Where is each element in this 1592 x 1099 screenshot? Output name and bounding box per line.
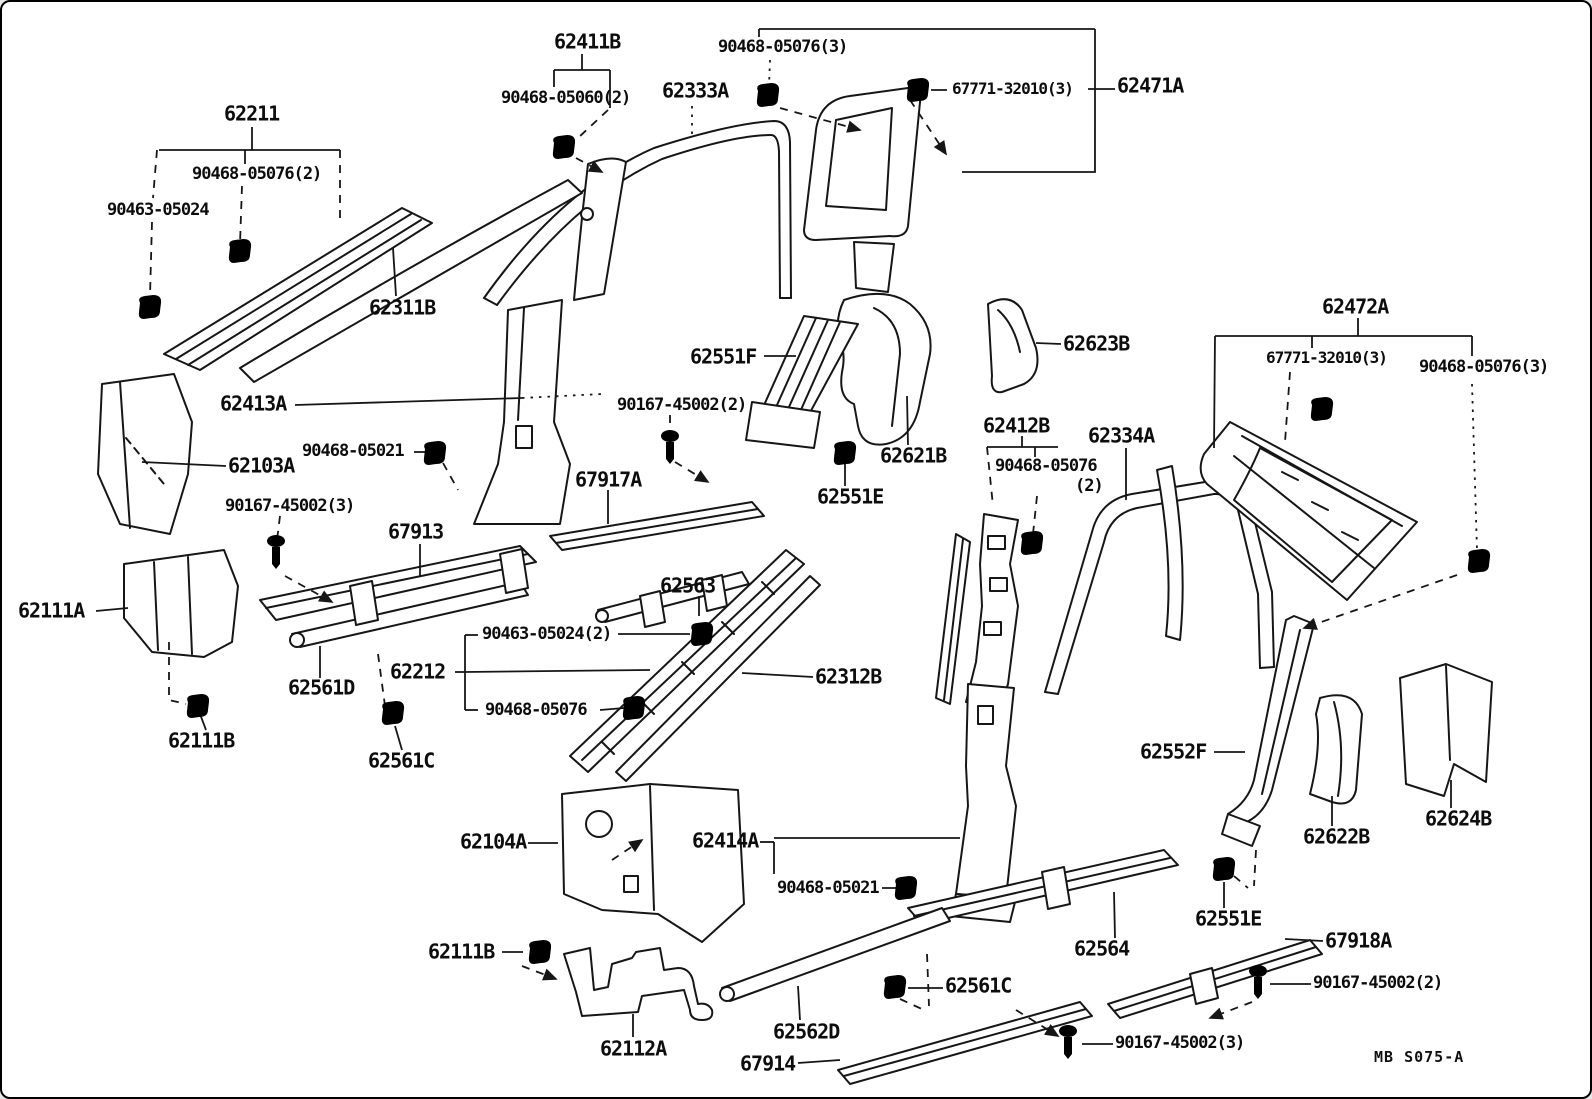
part-label-62111A-28: 62111A xyxy=(18,598,85,622)
leader-line-66 xyxy=(378,654,385,706)
part-label-62333A-6: 62333A xyxy=(662,78,729,102)
tapping-screw-icon xyxy=(1059,1025,1077,1059)
trim-clip-icon xyxy=(187,694,209,718)
part-62411B-shape xyxy=(574,158,626,300)
sheet-code: MB S075-A xyxy=(1374,1048,1464,1066)
part-label-62104A-40: 62104A xyxy=(460,829,527,853)
part-62471A-shape xyxy=(854,242,894,292)
part-label-62561D-34: 62561D xyxy=(288,675,355,699)
part-label-90468-050763-7: 90468-05076(3) xyxy=(718,37,847,57)
part-label-90468-05076-26: 90468-05076 xyxy=(995,456,1097,476)
part-62564-shape xyxy=(914,858,1170,916)
part-label-62471A-9: 62471A xyxy=(1117,73,1184,97)
part-62412B-shape xyxy=(984,622,1001,635)
parts-line-art xyxy=(98,88,1492,1084)
leader-line-65 xyxy=(395,726,402,750)
part-label-62564-47: 62564 xyxy=(1074,936,1130,960)
part-67913-clamp xyxy=(350,581,378,625)
trim-clip-icon xyxy=(139,295,161,319)
tapping-screw-icon xyxy=(1249,965,1267,999)
leader-line-31 xyxy=(295,398,522,405)
trim-clip-icon xyxy=(529,940,551,964)
leader-line-84 xyxy=(1285,939,1323,941)
part-62552F-shape xyxy=(1222,814,1260,846)
part-label-62211-0: 62211 xyxy=(224,101,280,125)
trim-clip-icon xyxy=(623,696,645,720)
leader-line-3 xyxy=(240,186,242,244)
part-label-62562D-49: 62562D xyxy=(773,1019,840,1043)
part-62112A-shape xyxy=(564,948,712,1020)
part-label-62411B-4: 62411B xyxy=(554,29,621,53)
part-label-62552F-37: 62552F xyxy=(1140,739,1206,763)
part-label-90468-050763-12: 90468-05076(3) xyxy=(1419,357,1548,377)
trim-clip-icon xyxy=(1021,531,1043,555)
trim-clip-icon xyxy=(553,135,575,159)
part-label-90468-050602-5: 90468-05060(2) xyxy=(501,88,630,108)
leader-line-57 xyxy=(465,670,650,672)
leader-line-34 xyxy=(443,463,458,490)
part-label-62112A-52: 62112A xyxy=(600,1036,667,1060)
part-label-62561C-48: 62561C xyxy=(945,973,1011,997)
part-62104A-shape xyxy=(586,811,612,837)
part-label-90167-450022-20: 90167-45002(2) xyxy=(617,395,746,415)
part-62411B-shape xyxy=(581,208,593,220)
part-62414A-shape xyxy=(978,706,993,724)
part-strip-shape xyxy=(1157,466,1183,640)
trim-clip-icon xyxy=(834,441,856,465)
part-label-62624B-39: 62624B xyxy=(1425,806,1492,830)
part-label-67771-320103-8: 67771-32010(3) xyxy=(952,79,1073,98)
part-67917A-shape xyxy=(556,509,758,543)
part-label-67914-50: 67914 xyxy=(740,1051,796,1075)
part-label-62111B-43: 62111B xyxy=(428,939,495,963)
part-label-90167-450023-16: 90167-45002(3) xyxy=(225,496,354,516)
leader-line-79 xyxy=(927,954,929,1006)
leader-line-49 xyxy=(987,447,993,506)
leader-line-60 xyxy=(742,673,813,677)
part-label-62312B-33: 62312B xyxy=(815,664,882,688)
leader-line-12 xyxy=(578,110,608,138)
part-label-62103A-15: 62103A xyxy=(228,453,295,477)
trim-clip-icon xyxy=(1213,857,1235,881)
part-62412B-shape xyxy=(990,578,1007,591)
trim-clip-icon xyxy=(382,701,404,725)
part-62333A-shape xyxy=(497,135,780,305)
leader-line-76 xyxy=(798,1060,840,1063)
part-label-90468-05076-31: 90468-05076 xyxy=(485,700,587,720)
leader-line-18 xyxy=(769,60,770,86)
part-label-67918A-45: 67918A xyxy=(1325,928,1392,952)
part-62564-clamp xyxy=(1042,867,1070,909)
part-label-62111B-35: 62111B xyxy=(168,728,235,752)
leader-line-77 xyxy=(1114,892,1115,938)
part-62412B-shape xyxy=(988,536,1005,549)
part-label-62561C-36: 62561C xyxy=(368,748,434,772)
part-62471A-shape xyxy=(826,108,892,210)
part-label-90167-450023-51: 90167-45002(3) xyxy=(1115,1033,1244,1053)
part-label-90468-05021-42: 90468-05021 xyxy=(777,878,879,898)
leader-line-82 xyxy=(1254,850,1256,886)
part-label-90463-050242-30: 90463-05024(2) xyxy=(482,624,611,644)
part-62413A-shape xyxy=(516,426,532,448)
trim-clip-icon xyxy=(1468,549,1490,573)
leader-line-17 xyxy=(962,29,1095,172)
part-label-62623B-23: 62623B xyxy=(1063,331,1130,355)
part-label-62472A-10: 62472A xyxy=(1322,294,1389,318)
leader-line-73 xyxy=(522,966,556,979)
trim-clip-icon xyxy=(757,83,779,107)
part-label-90167-450022-46: 90167-45002(2) xyxy=(1313,973,1442,993)
part-label-67771-320103-11: 67771-32010(3) xyxy=(1266,348,1387,367)
part-label-62563-32: 62563 xyxy=(660,573,715,597)
part-67918A-clamp xyxy=(1190,968,1218,1004)
part-label-67913-17: 67913 xyxy=(388,519,443,543)
leader-line-28 xyxy=(1285,372,1290,442)
leader-line-5 xyxy=(150,222,152,296)
part-62562D-shape xyxy=(720,987,734,1001)
part-label-62551E-22: 62551E xyxy=(817,484,883,508)
leader-line-4 xyxy=(153,150,157,198)
part-62334A-shape xyxy=(1045,667,1274,694)
leader-line-75 xyxy=(798,986,800,1020)
trim-clip-icon xyxy=(907,78,929,102)
leader-line-29 xyxy=(1472,384,1477,550)
part-62563-shape xyxy=(596,610,608,622)
part-62552F-shape xyxy=(1228,616,1314,824)
part-62333A-shape xyxy=(484,298,791,305)
leader-line-86 xyxy=(1210,1002,1252,1018)
part-62103A-shape xyxy=(98,374,192,534)
part-62621B-shape xyxy=(838,294,931,445)
parts-diagram-sheet: 6221190468-05076(2)90463-0502462311B6241… xyxy=(0,0,1592,1099)
leader-line-83 xyxy=(1234,876,1248,888)
part-label-67917A-18: 67917A xyxy=(575,467,642,491)
leader-line-46 xyxy=(1036,343,1061,344)
trim-clip-icon xyxy=(229,239,251,263)
part-label-62412B-24: 62412B xyxy=(983,413,1050,437)
part-label-62622B-38: 62622B xyxy=(1303,824,1370,848)
leader-line-45 xyxy=(907,396,908,445)
part-label-90468-05021-14: 90468-05021 xyxy=(302,441,404,461)
leader-line-51 xyxy=(1033,496,1037,534)
part-label-62413A-13: 62413A xyxy=(220,391,287,415)
trim-clip-icon xyxy=(1311,397,1333,421)
part-62111A-shape xyxy=(124,550,238,657)
leader-lines-layer xyxy=(96,29,1477,1063)
tapping-screw-icon xyxy=(267,535,285,569)
leader-line-80 xyxy=(900,999,924,1010)
part-label-90463-05024-2: 90463-05024 xyxy=(107,200,209,220)
part-62562D-shape xyxy=(722,908,950,1001)
part-62104A-shape xyxy=(624,876,638,892)
tapping-screw-icon xyxy=(661,430,679,464)
part-62472A-shape xyxy=(1201,422,1417,600)
part-label-2-27: (2) xyxy=(1075,476,1103,496)
part-62561D-shape xyxy=(290,633,304,647)
part-label-62212-29: 62212 xyxy=(390,659,445,683)
trim-clip-icon xyxy=(884,975,906,999)
part-label-62551F-19: 62551F xyxy=(690,344,756,368)
diagram-canvas: 6221190468-05076(2)90463-0502462311B6241… xyxy=(2,2,1592,1099)
trim-clip-icon xyxy=(691,622,713,646)
part-label-90468-050762-1: 90468-05076(2) xyxy=(192,164,321,184)
part-label-62621B-21: 62621B xyxy=(880,443,947,467)
leader-line-43 xyxy=(675,462,708,482)
part-label-62334A-25: 62334A xyxy=(1088,423,1155,447)
part-67913-clamp xyxy=(500,549,528,593)
part-62623B-shape xyxy=(988,299,1038,392)
trim-clip-icon xyxy=(895,876,917,900)
part-label-62311B-3: 62311B xyxy=(369,295,436,319)
part-label-62551E-44: 62551E xyxy=(1195,906,1261,930)
part-67914-shape xyxy=(844,1009,1086,1076)
part-label-62414A-41: 62414A xyxy=(692,828,759,852)
part-62334A-shape xyxy=(1058,494,1260,694)
leader-line-26 xyxy=(1214,336,1215,448)
trim-clip-icon xyxy=(424,441,446,465)
